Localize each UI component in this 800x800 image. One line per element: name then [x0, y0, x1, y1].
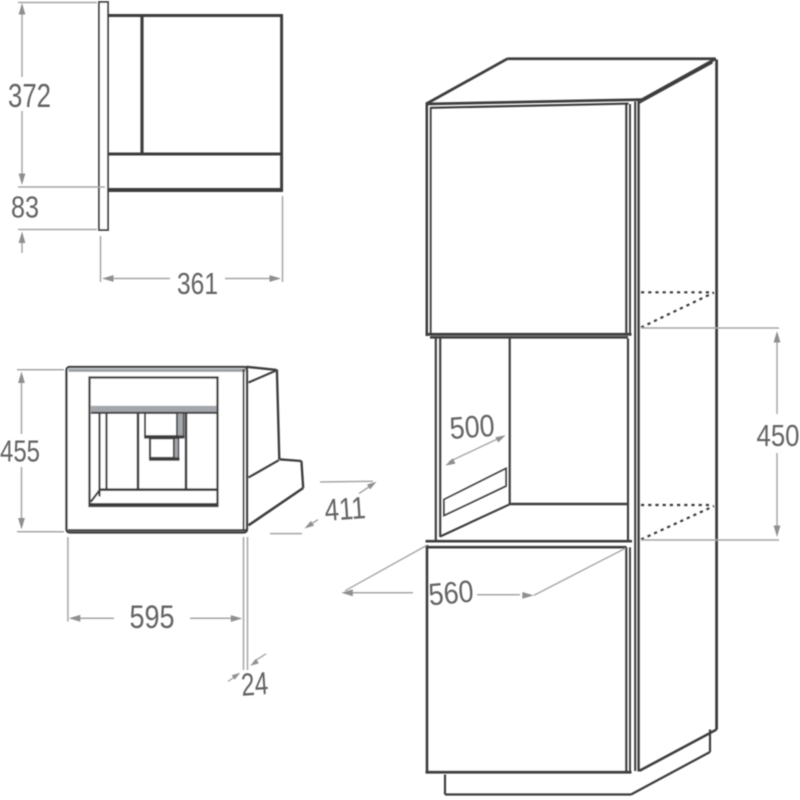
svg-text:411: 411 — [323, 490, 366, 528]
svg-text:560: 560 — [427, 574, 475, 613]
svg-text:361: 361 — [177, 266, 218, 301]
svg-text:24: 24 — [240, 665, 269, 703]
svg-text:500: 500 — [448, 408, 495, 446]
svg-text:450: 450 — [757, 418, 800, 453]
svg-text:372: 372 — [8, 77, 51, 114]
svg-text:595: 595 — [130, 599, 175, 635]
svg-text:83: 83 — [11, 190, 39, 225]
svg-text:455: 455 — [0, 434, 40, 469]
